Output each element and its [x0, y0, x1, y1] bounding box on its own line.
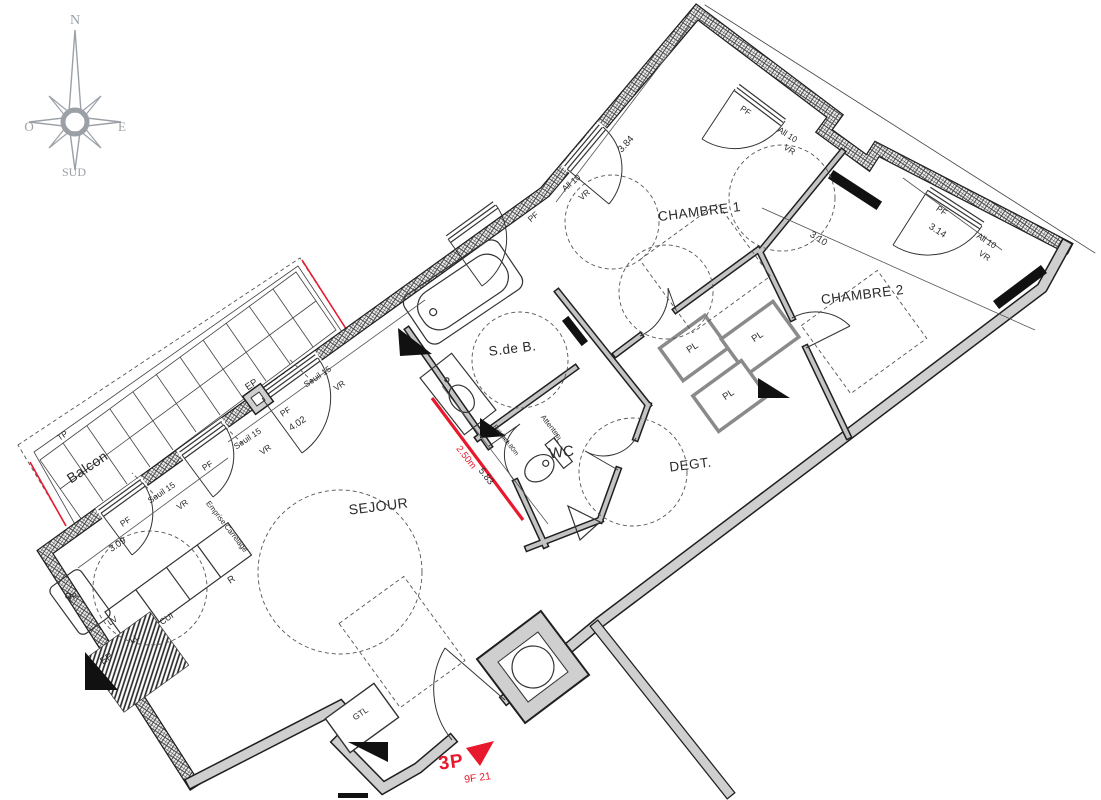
compass-n: N: [70, 13, 80, 28]
dim-402: 4.02: [287, 414, 308, 433]
dim-309: 3.09: [107, 535, 128, 554]
compass-north-spike: [69, 30, 81, 112]
window-label-pf: PF: [278, 404, 293, 418]
compass-o: O: [24, 119, 33, 134]
window-label-vr: VR: [332, 378, 347, 393]
window-chambre1-north: [731, 81, 789, 129]
floorplan-page: PF Seuil 15 VR PF Seuil 15 VR EP Seuil 1…: [0, 0, 1101, 800]
chambre2-door: [792, 312, 850, 348]
chambre1-door: [640, 288, 676, 336]
emprise-carrelage-label: Emprise Carrelage: [204, 499, 250, 554]
window-sejour-2: [176, 418, 230, 462]
window-label-vr: VR: [782, 142, 797, 157]
closet-door-wedge: [758, 378, 790, 398]
window-label-vr: VR: [977, 248, 992, 263]
dim-583: 5.83: [476, 466, 496, 487]
dim-314: 3.14: [927, 221, 949, 240]
kitchen-label-r: R: [226, 573, 238, 586]
page-edge-mark: [338, 793, 368, 798]
wall-marks: [85, 170, 1047, 798]
floorplan-drawing: PF Seuil 15 VR PF Seuil 15 VR EP Seuil 1…: [0, 0, 1101, 800]
unit-code-label: 9F 21: [463, 770, 491, 786]
unit-arrow-icon: [466, 741, 494, 766]
radiator-chambre1: [828, 170, 882, 210]
room-label-sejour: SEJOUR: [348, 494, 409, 517]
structural-walls: [192, 246, 1065, 792]
closets: [660, 301, 799, 431]
table-sejour: [339, 576, 465, 707]
room-label-balcon: Balcon: [64, 447, 111, 486]
balcony-red-limit-right: [302, 260, 350, 335]
window-swing-arcs: [101, 89, 982, 555]
property-limit-line: [705, 5, 1095, 253]
unit-type-label: 3P: [437, 750, 465, 774]
window-label-vr: VR: [258, 442, 273, 457]
compass-ring: [63, 110, 87, 134]
dim-310: 3.10: [808, 229, 830, 248]
compass-e: E: [118, 119, 126, 134]
tp-label: TP: [55, 428, 70, 443]
room-label-wc: WC: [548, 443, 575, 463]
wc-door: [585, 438, 636, 470]
window-sejour-1: [95, 476, 149, 520]
compass-rose: N O E SUD: [24, 13, 126, 179]
balcony-outer-dashed-rail: [18, 258, 352, 532]
wedge-sdb: [398, 328, 432, 356]
compass-west-spike: [29, 118, 63, 126]
window-label-pf: PF: [200, 458, 215, 472]
balcony: [18, 258, 352, 532]
compass-east-spike: [87, 118, 121, 126]
technical-shaft: [477, 611, 589, 723]
room-label-chambre2: CHAMBRE 2: [820, 282, 904, 307]
room-label-chambre1: CHAMBRE 1: [657, 199, 741, 224]
window-chambre1-west: [561, 121, 609, 174]
room-label-sdb: S.de B.: [488, 338, 537, 359]
window-label-all10: All 10: [975, 230, 999, 250]
room-label-degt: DEGT.: [669, 455, 713, 475]
window-label-vr: VR: [175, 497, 190, 512]
window-label-pf: PF: [118, 514, 133, 528]
compass-sud: SUD: [62, 165, 86, 179]
